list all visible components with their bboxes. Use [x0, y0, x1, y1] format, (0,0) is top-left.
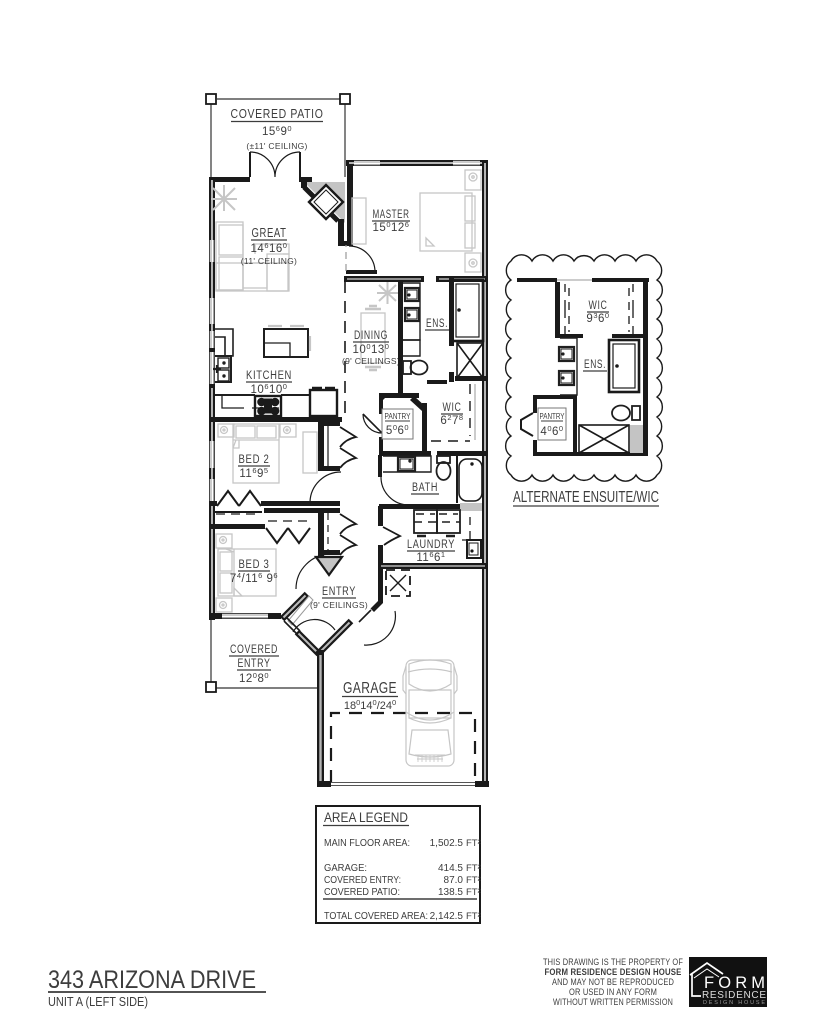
- svg-text:ENS.: ENS.: [426, 318, 448, 330]
- svg-text:ENS.: ENS.: [584, 359, 606, 371]
- svg-text:FT²: FT²: [466, 863, 481, 874]
- svg-text:FT²: FT²: [466, 875, 481, 886]
- svg-text:150126: 150126: [373, 220, 410, 234]
- svg-text:FORM RESIDENCE DESIGN HOUSE: FORM RESIDENCE DESIGN HOUSE: [545, 967, 682, 977]
- svg-text:UNIT A (LEFT SIDE): UNIT A (LEFT SIDE): [48, 995, 148, 1009]
- svg-text:DESIGN HOUSE: DESIGN HOUSE: [703, 1000, 765, 1006]
- svg-text:87.0: 87.0: [444, 875, 464, 886]
- svg-text:AREA LEGEND: AREA LEGEND: [324, 810, 408, 825]
- svg-text:138.5: 138.5: [438, 887, 463, 898]
- svg-text:COVERED: COVERED: [230, 644, 278, 656]
- svg-text:BED 3: BED 3: [239, 559, 270, 571]
- svg-text:COVERED PATIO: COVERED PATIO: [231, 106, 324, 121]
- svg-text:(±11' CEILING): (±11' CEILING): [246, 141, 307, 151]
- svg-text:AND MAY NOT BE REPRODUCED: AND MAY NOT BE REPRODUCED: [552, 977, 674, 987]
- svg-text:ENTRY: ENTRY: [238, 658, 271, 670]
- svg-text:BATH: BATH: [412, 482, 438, 494]
- svg-text:COVERED ENTRY:: COVERED ENTRY:: [324, 875, 401, 886]
- svg-text:MAIN FLOOR AREA:: MAIN FLOOR AREA:: [324, 838, 410, 849]
- svg-text:(11' CEILING): (11' CEILING): [241, 256, 297, 266]
- svg-text:146160: 146160: [251, 241, 288, 255]
- svg-text:THIS DRAWING IS THE PROPERTY O: THIS DRAWING IS THE PROPERTY OF: [543, 957, 683, 967]
- svg-text:PANTRY: PANTRY: [540, 411, 565, 421]
- svg-text:1,502.5: 1,502.5: [430, 838, 464, 849]
- svg-text:TOTAL COVERED AREA:: TOTAL COVERED AREA:: [324, 911, 428, 922]
- svg-text:GARAGE:: GARAGE:: [324, 863, 367, 874]
- svg-text:FT²: FT²: [466, 911, 481, 922]
- svg-text:180140/240: 180140/240: [344, 698, 396, 712]
- svg-text:BED 2: BED 2: [239, 454, 270, 466]
- svg-text:KITCHEN: KITCHEN: [246, 370, 292, 382]
- svg-text:FT²: FT²: [466, 838, 481, 849]
- svg-text:FT²: FT²: [466, 887, 481, 898]
- svg-text:(9' CEILINGS): (9' CEILINGS): [342, 356, 400, 366]
- svg-text:106100: 106100: [251, 382, 288, 396]
- svg-text:ALTERNATE ENSUITE/WIC: ALTERNATE ENSUITE/WIC: [513, 489, 659, 506]
- svg-text:2,142.5: 2,142.5: [430, 911, 464, 922]
- svg-text:COVERED PATIO:: COVERED PATIO:: [324, 887, 400, 898]
- svg-text:343 ARIZONA DRIVE: 343 ARIZONA DRIVE: [48, 966, 256, 994]
- svg-text:100130: 100130: [353, 342, 390, 356]
- svg-text:DINING: DINING: [354, 330, 388, 342]
- svg-text:GARAGE: GARAGE: [343, 680, 397, 697]
- svg-text:ENTRY: ENTRY: [322, 586, 356, 598]
- svg-text:WITHOUT WRITTEN PERMISSION: WITHOUT WRITTEN PERMISSION: [553, 997, 673, 1007]
- svg-text:GREAT: GREAT: [252, 225, 287, 240]
- svg-text:PANTRY: PANTRY: [385, 411, 411, 421]
- svg-text:OR USED IN ANY FORM: OR USED IN ANY FORM: [569, 987, 657, 997]
- svg-text:414.5: 414.5: [438, 863, 463, 874]
- svg-text:(9' CEILINGS): (9' CEILINGS): [310, 600, 368, 610]
